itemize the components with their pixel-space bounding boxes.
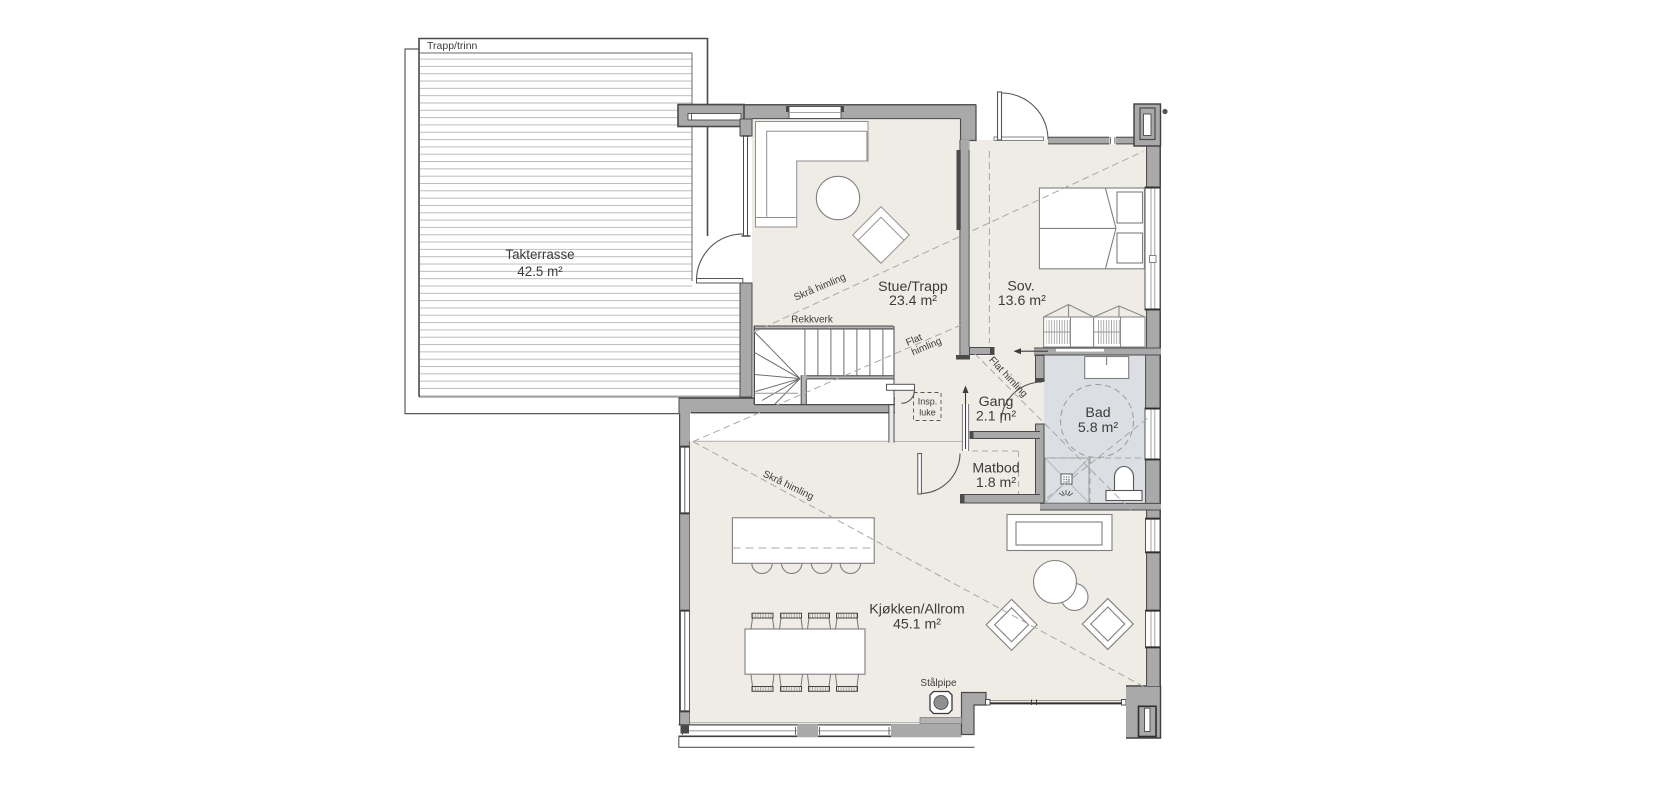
svg-text:Insp.: Insp. (918, 397, 938, 407)
svg-text:Kjøkken/Allrom: Kjøkken/Allrom (869, 602, 964, 618)
svg-text:Bad: Bad (1085, 405, 1110, 421)
svg-text:1.8 m²: 1.8 m² (976, 475, 1016, 491)
svg-text:45.1 m²: 45.1 m² (893, 617, 941, 633)
svg-text:Trapp/trinn: Trapp/trinn (427, 40, 478, 52)
svg-text:Takterrasse: Takterrasse (505, 247, 574, 262)
svg-text:42.5 m²: 42.5 m² (517, 264, 563, 279)
svg-text:23.4 m²: 23.4 m² (889, 293, 937, 309)
svg-text:luke: luke (919, 408, 936, 418)
svg-text:5.8 m²: 5.8 m² (1078, 420, 1118, 436)
svg-text:13.6 m²: 13.6 m² (998, 293, 1046, 309)
svg-text:Stålpipe: Stålpipe (920, 677, 957, 689)
svg-text:2.1 m²: 2.1 m² (976, 409, 1016, 425)
svg-text:Rekkverk: Rekkverk (791, 315, 834, 326)
